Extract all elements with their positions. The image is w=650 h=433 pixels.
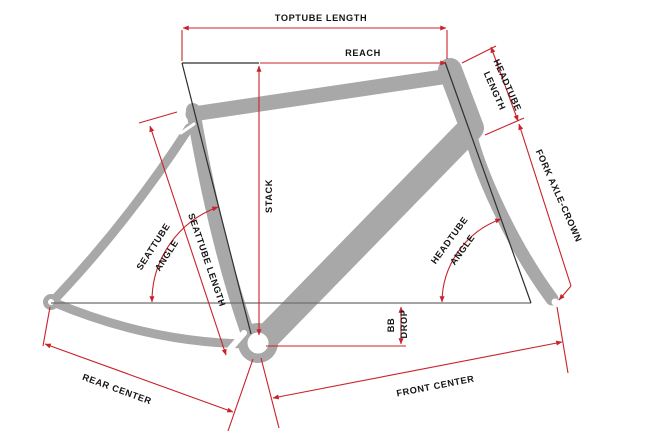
front-axle-hole xyxy=(552,299,559,306)
diagram-canvas: TOPTUBE LENGTH REACH STACK HEADTUBE LENG… xyxy=(0,0,650,433)
stack-label: STACK xyxy=(264,179,274,213)
toptube-length-label: TOPTUBE LENGTH xyxy=(275,13,367,23)
rear-axle-hole xyxy=(48,299,54,305)
diagram-background xyxy=(0,0,650,433)
bb-drop-label-line1: BB xyxy=(386,318,396,332)
reach-label: REACH xyxy=(345,48,381,58)
bb-drop-label-line2: DROP xyxy=(399,310,409,339)
bottom-bracket-hole xyxy=(248,333,269,354)
frame-geometry-diagram: TOPTUBE LENGTH REACH STACK HEADTUBE LENG… xyxy=(0,0,650,433)
